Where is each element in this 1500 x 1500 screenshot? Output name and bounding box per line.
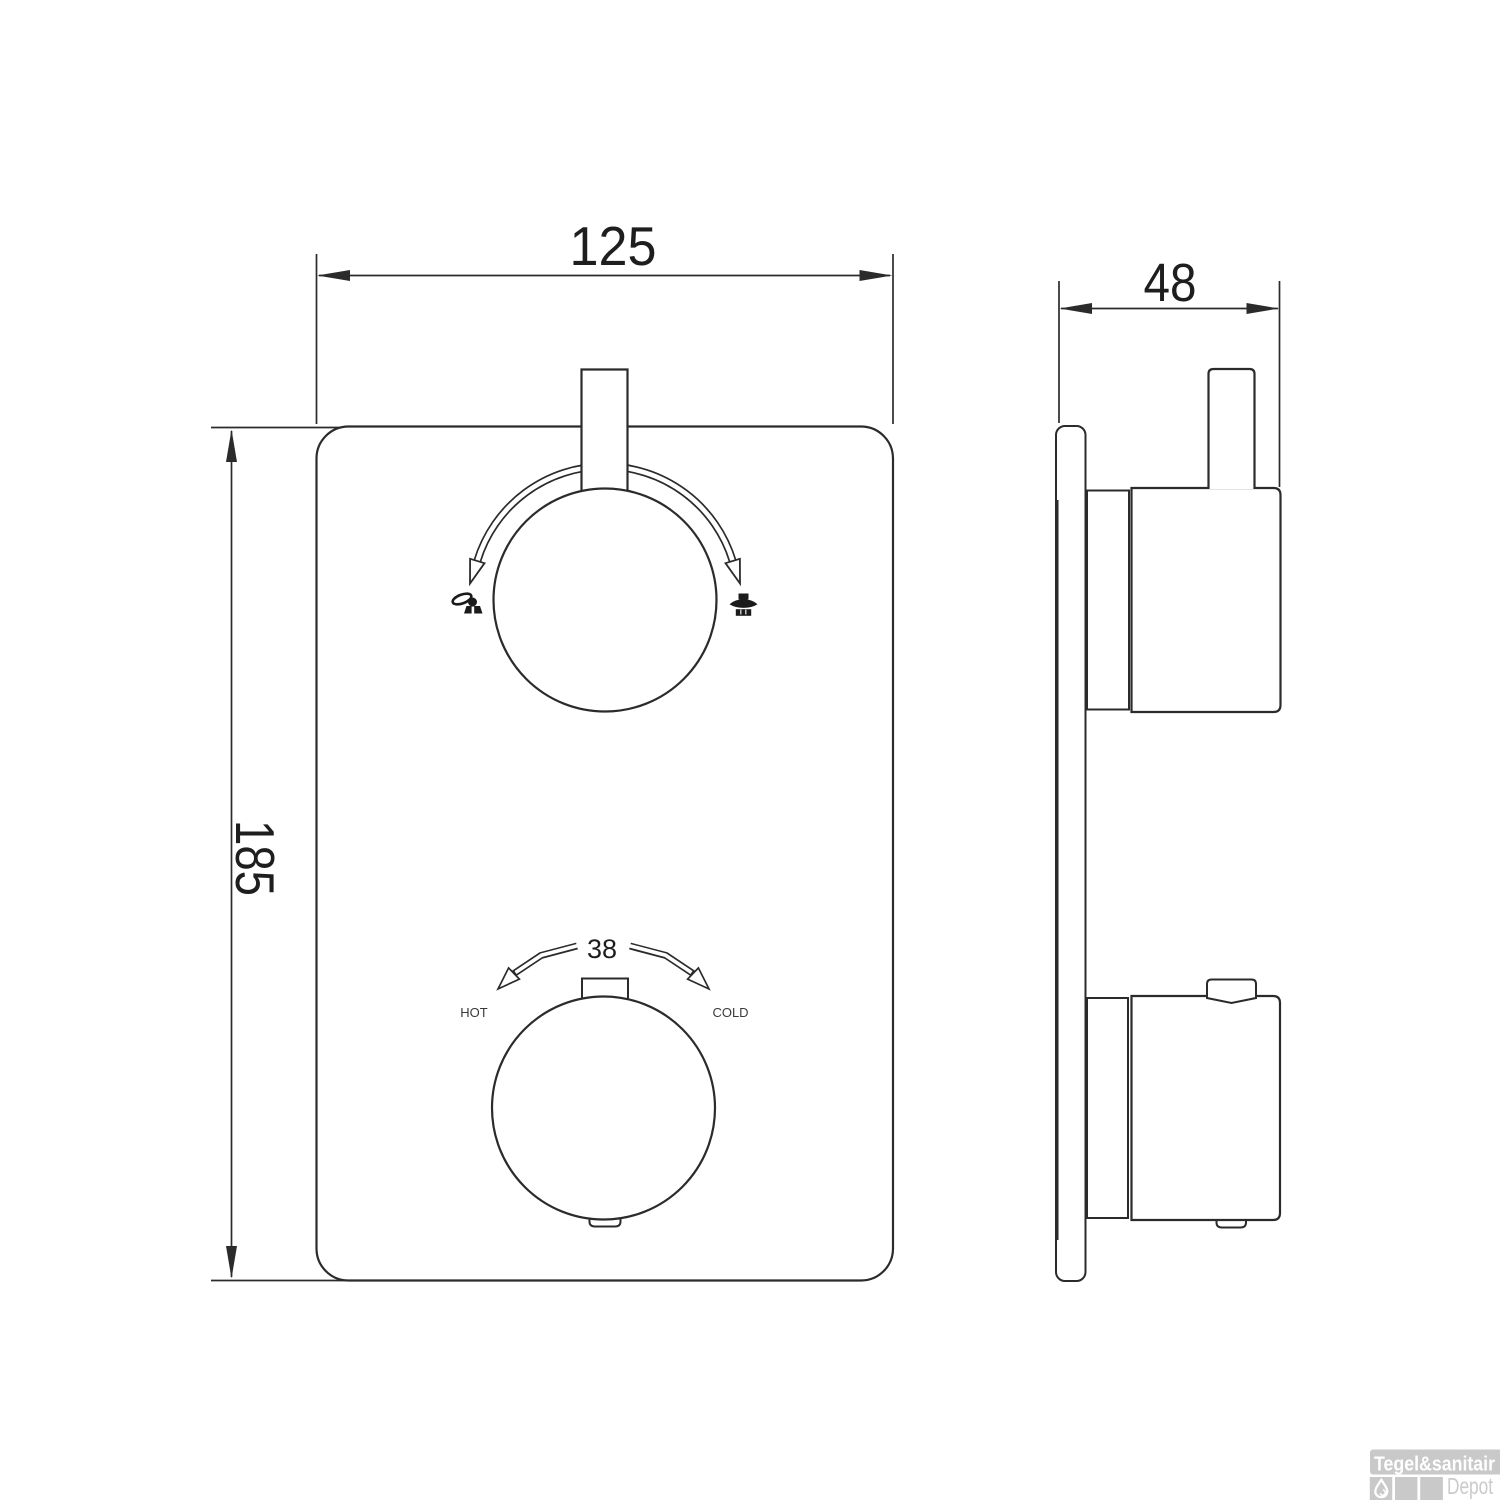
svg-text:HOT: HOT [460, 1005, 488, 1020]
svg-text:Depot: Depot [1447, 1473, 1493, 1499]
svg-text:185: 185 [224, 820, 286, 896]
svg-text:48: 48 [1144, 253, 1197, 313]
svg-text:COLD: COLD [712, 1005, 748, 1020]
svg-text:125: 125 [570, 215, 657, 277]
svg-text:38: 38 [587, 934, 617, 964]
